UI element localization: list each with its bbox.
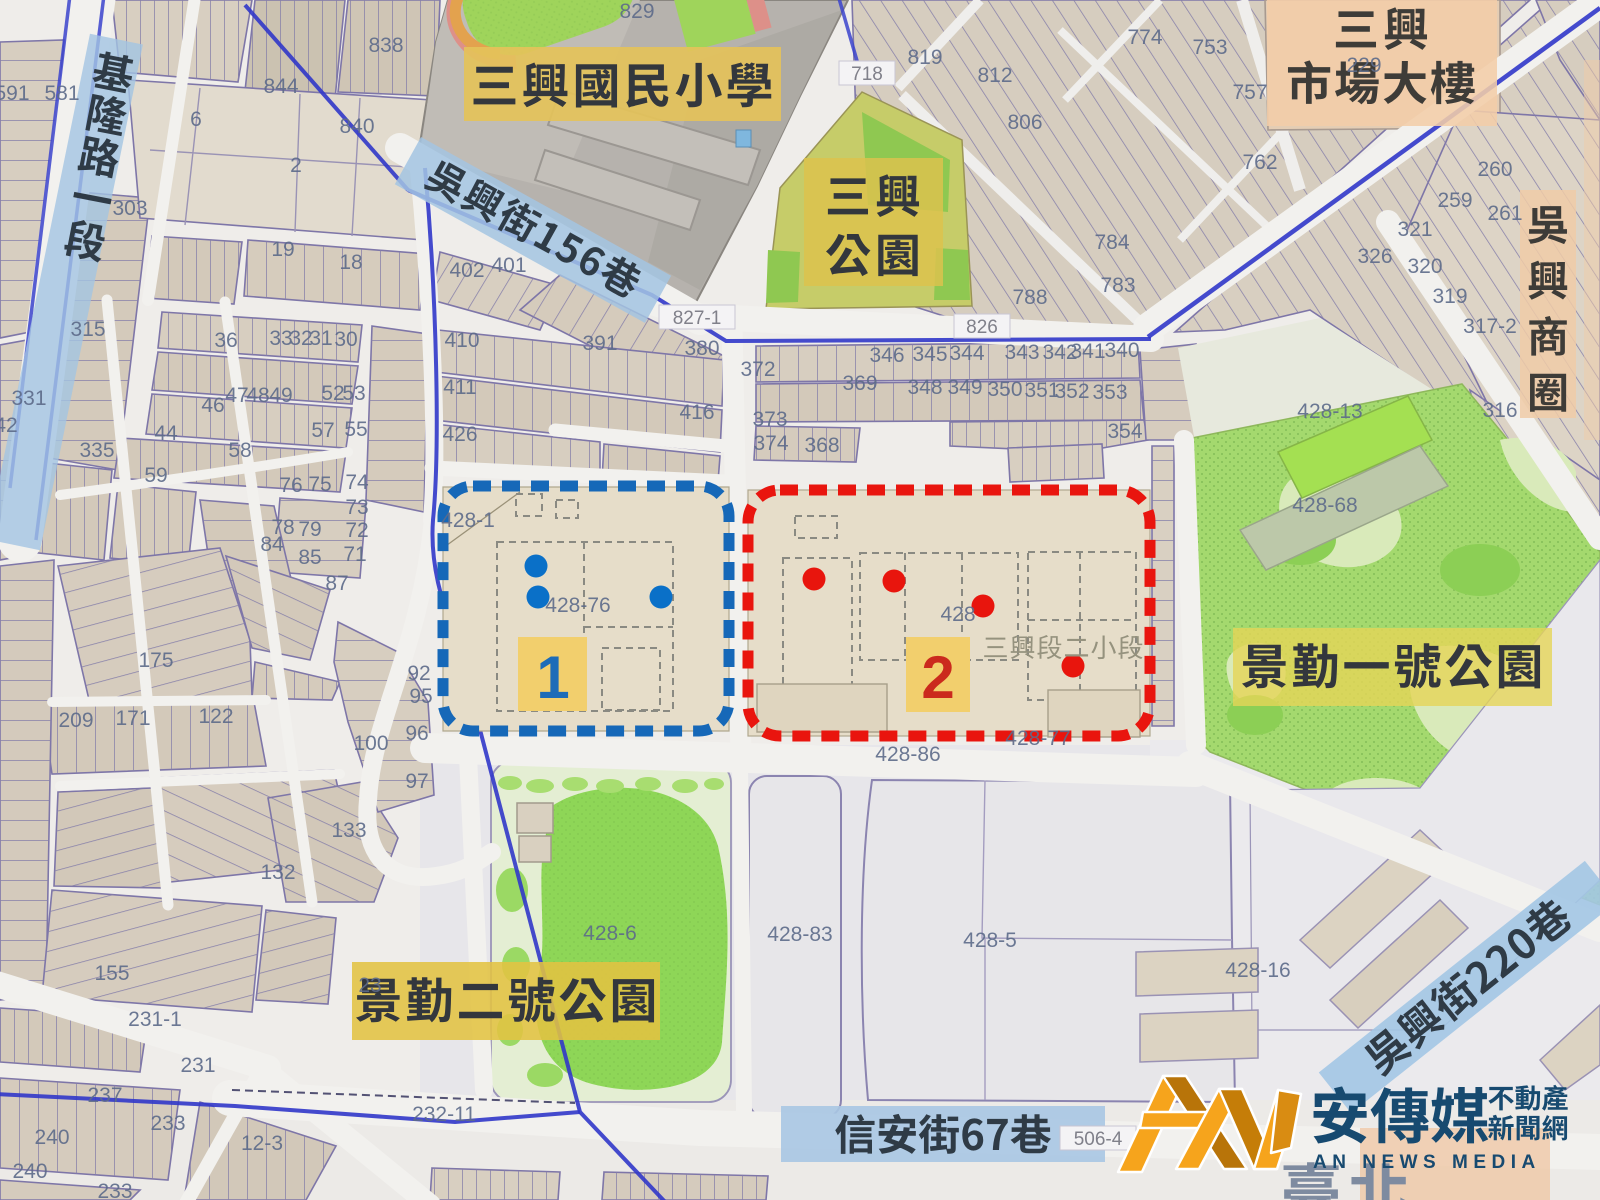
svg-text:506-4: 506-4 bbox=[1074, 1129, 1123, 1150]
svg-text:331: 331 bbox=[11, 387, 46, 410]
svg-text:335: 335 bbox=[79, 439, 114, 462]
svg-text:48: 48 bbox=[246, 384, 269, 407]
svg-text:74: 74 bbox=[345, 471, 369, 494]
svg-text:581: 581 bbox=[44, 82, 79, 105]
svg-text:806: 806 bbox=[1007, 111, 1042, 134]
svg-text:368: 368 bbox=[804, 434, 839, 457]
svg-text:73: 73 bbox=[345, 496, 368, 519]
svg-text:133: 133 bbox=[331, 819, 366, 842]
svg-text:23: 23 bbox=[358, 974, 381, 997]
svg-text:348: 348 bbox=[907, 376, 942, 399]
svg-text:757: 757 bbox=[1232, 81, 1267, 104]
svg-text:87: 87 bbox=[325, 572, 348, 595]
svg-text:350: 350 bbox=[987, 378, 1022, 401]
svg-text:753: 753 bbox=[1192, 36, 1227, 59]
svg-text:380: 380 bbox=[684, 337, 719, 360]
svg-text:79: 79 bbox=[298, 518, 321, 541]
svg-text:320: 320 bbox=[1407, 255, 1442, 278]
svg-text:175: 175 bbox=[138, 649, 173, 672]
svg-text:95: 95 bbox=[409, 685, 432, 708]
svg-text:774: 774 bbox=[1127, 26, 1162, 49]
svg-text:591: 591 bbox=[0, 82, 30, 105]
svg-text:155: 155 bbox=[94, 962, 129, 985]
svg-text:428-16: 428-16 bbox=[1225, 959, 1290, 982]
svg-text:30: 30 bbox=[334, 328, 357, 351]
svg-text:46: 46 bbox=[201, 394, 224, 417]
svg-text:319: 319 bbox=[1432, 285, 1467, 308]
svg-text:391: 391 bbox=[582, 332, 617, 355]
svg-text:340: 340 bbox=[1104, 339, 1139, 362]
svg-text:12-3: 12-3 bbox=[241, 1132, 283, 1155]
svg-text:85: 85 bbox=[298, 546, 321, 569]
svg-text:369: 369 bbox=[842, 372, 877, 395]
svg-text:233: 233 bbox=[150, 1112, 185, 1135]
svg-text:1: 1 bbox=[536, 644, 569, 711]
svg-text:233: 233 bbox=[97, 1180, 132, 1200]
svg-text:19: 19 bbox=[271, 238, 294, 261]
svg-text:317-2: 317-2 bbox=[1463, 315, 1517, 338]
svg-text:411: 411 bbox=[443, 376, 476, 399]
svg-text:71: 71 bbox=[343, 543, 366, 566]
svg-text:343: 343 bbox=[1004, 341, 1039, 364]
svg-text:838: 838 bbox=[368, 34, 403, 57]
svg-text:354: 354 bbox=[1107, 420, 1142, 443]
svg-text:240: 240 bbox=[12, 1160, 47, 1183]
svg-text:844: 844 bbox=[263, 75, 298, 98]
svg-text:261: 261 bbox=[1487, 202, 1522, 225]
svg-text:428-86: 428-86 bbox=[875, 743, 940, 766]
svg-text:96: 96 bbox=[405, 722, 428, 745]
svg-text:402: 402 bbox=[449, 259, 484, 282]
svg-text:55: 55 bbox=[344, 418, 367, 441]
svg-text:52: 52 bbox=[321, 382, 344, 405]
svg-text:826: 826 bbox=[966, 317, 998, 338]
svg-text:260: 260 bbox=[1477, 158, 1512, 181]
svg-text:784: 784 bbox=[1094, 231, 1129, 254]
svg-text:44: 44 bbox=[154, 422, 178, 445]
svg-text:428-83: 428-83 bbox=[767, 923, 832, 946]
svg-text:428-77: 428-77 bbox=[1005, 727, 1070, 750]
svg-text:47: 47 bbox=[225, 384, 248, 407]
svg-text:31: 31 bbox=[309, 327, 332, 350]
svg-text:231-1: 231-1 bbox=[128, 1008, 182, 1031]
svg-text:428-6: 428-6 bbox=[583, 922, 637, 945]
svg-text:428-5: 428-5 bbox=[963, 929, 1017, 952]
svg-text:372: 372 bbox=[740, 358, 775, 381]
svg-text:827-1: 827-1 bbox=[673, 308, 722, 329]
svg-text:829: 829 bbox=[619, 0, 654, 23]
svg-text:237: 237 bbox=[87, 1084, 122, 1107]
svg-text:374: 374 bbox=[753, 432, 788, 455]
svg-text:97: 97 bbox=[405, 770, 428, 793]
svg-text:59: 59 bbox=[144, 464, 167, 487]
svg-text:428-13: 428-13 bbox=[1297, 400, 1362, 423]
svg-text:762: 762 bbox=[1242, 151, 1277, 174]
svg-text:416: 416 bbox=[679, 401, 714, 424]
svg-text:401: 401 bbox=[491, 254, 526, 277]
svg-text:171: 171 bbox=[115, 707, 150, 730]
svg-text:92: 92 bbox=[407, 662, 430, 685]
svg-text:AN NEWS MEDIA: AN NEWS MEDIA bbox=[1313, 1152, 1541, 1173]
svg-text:18: 18 bbox=[339, 251, 362, 274]
svg-text:428-1: 428-1 bbox=[441, 509, 495, 532]
svg-text:6: 6 bbox=[190, 108, 202, 131]
svg-text:426: 426 bbox=[442, 423, 477, 446]
svg-text:75: 75 bbox=[308, 473, 331, 496]
svg-text:316: 316 bbox=[1482, 399, 1517, 422]
svg-text:428: 428 bbox=[940, 603, 975, 626]
svg-text:788: 788 bbox=[1012, 286, 1047, 309]
svg-text:2: 2 bbox=[290, 154, 302, 177]
svg-text:57: 57 bbox=[311, 419, 334, 442]
svg-text:53: 53 bbox=[342, 382, 365, 405]
svg-text:303: 303 bbox=[112, 197, 147, 220]
svg-text:231: 231 bbox=[180, 1054, 215, 1077]
svg-text:232-11: 232-11 bbox=[412, 1103, 476, 1126]
svg-text:428-76: 428-76 bbox=[545, 594, 610, 617]
svg-text:344: 344 bbox=[949, 342, 984, 365]
svg-text:122: 122 bbox=[198, 705, 233, 728]
svg-text:428-68: 428-68 bbox=[1292, 494, 1357, 517]
svg-text:100: 100 bbox=[353, 732, 388, 755]
svg-text:72: 72 bbox=[345, 519, 368, 542]
svg-text:229: 229 bbox=[1346, 54, 1381, 77]
svg-text:321: 321 bbox=[1397, 218, 1432, 241]
svg-text:718: 718 bbox=[851, 64, 883, 85]
svg-text:49: 49 bbox=[269, 384, 292, 407]
svg-text:346: 346 bbox=[869, 344, 904, 367]
svg-text:410: 410 bbox=[444, 329, 479, 352]
svg-text:373: 373 bbox=[752, 408, 787, 431]
svg-text:345: 345 bbox=[912, 343, 947, 366]
svg-text:352: 352 bbox=[1054, 380, 1089, 403]
svg-text:812: 812 bbox=[977, 64, 1012, 87]
svg-text:315: 315 bbox=[70, 318, 105, 341]
svg-text:132: 132 bbox=[260, 861, 295, 884]
svg-text:349: 349 bbox=[947, 376, 982, 399]
svg-text:2: 2 bbox=[921, 644, 954, 711]
svg-text:259: 259 bbox=[1437, 189, 1472, 212]
svg-text:353: 353 bbox=[1092, 381, 1127, 404]
svg-text:341: 341 bbox=[1070, 340, 1105, 363]
svg-text:84: 84 bbox=[260, 533, 284, 556]
svg-text:209: 209 bbox=[58, 709, 93, 732]
svg-text:42: 42 bbox=[0, 414, 18, 437]
svg-text:783: 783 bbox=[1100, 274, 1135, 297]
svg-text:240: 240 bbox=[34, 1126, 69, 1149]
svg-text:76: 76 bbox=[279, 474, 302, 497]
svg-text:36: 36 bbox=[214, 329, 237, 352]
svg-text:819: 819 bbox=[907, 46, 942, 69]
svg-text:326: 326 bbox=[1357, 245, 1392, 268]
svg-text:58: 58 bbox=[228, 439, 251, 462]
svg-text:840: 840 bbox=[339, 115, 374, 138]
